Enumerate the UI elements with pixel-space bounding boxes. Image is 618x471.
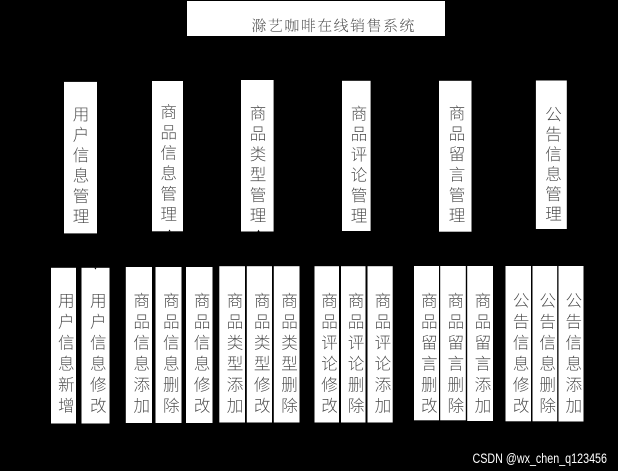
svg-text:CSDN @wx_chen_q123456: CSDN @wx_chen_q123456 bbox=[473, 451, 608, 466]
